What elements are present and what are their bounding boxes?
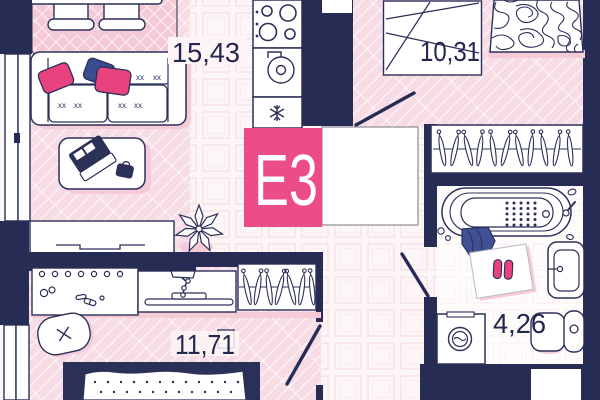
- svg-text:4,26: 4,26: [493, 308, 546, 339]
- svg-text:10,31: 10,31: [420, 36, 480, 67]
- svg-text:xx: xx: [136, 73, 144, 82]
- svg-text:15,43: 15,43: [172, 37, 240, 68]
- svg-text:xx: xx: [74, 101, 82, 110]
- svg-text:xx: xx: [118, 101, 126, 110]
- svg-text:xx: xx: [58, 101, 66, 110]
- svg-text:11,71: 11,71: [175, 329, 235, 360]
- svg-text:E3: E3: [254, 141, 318, 221]
- svg-text:xx: xx: [134, 101, 142, 110]
- svg-text:xx: xx: [153, 73, 161, 82]
